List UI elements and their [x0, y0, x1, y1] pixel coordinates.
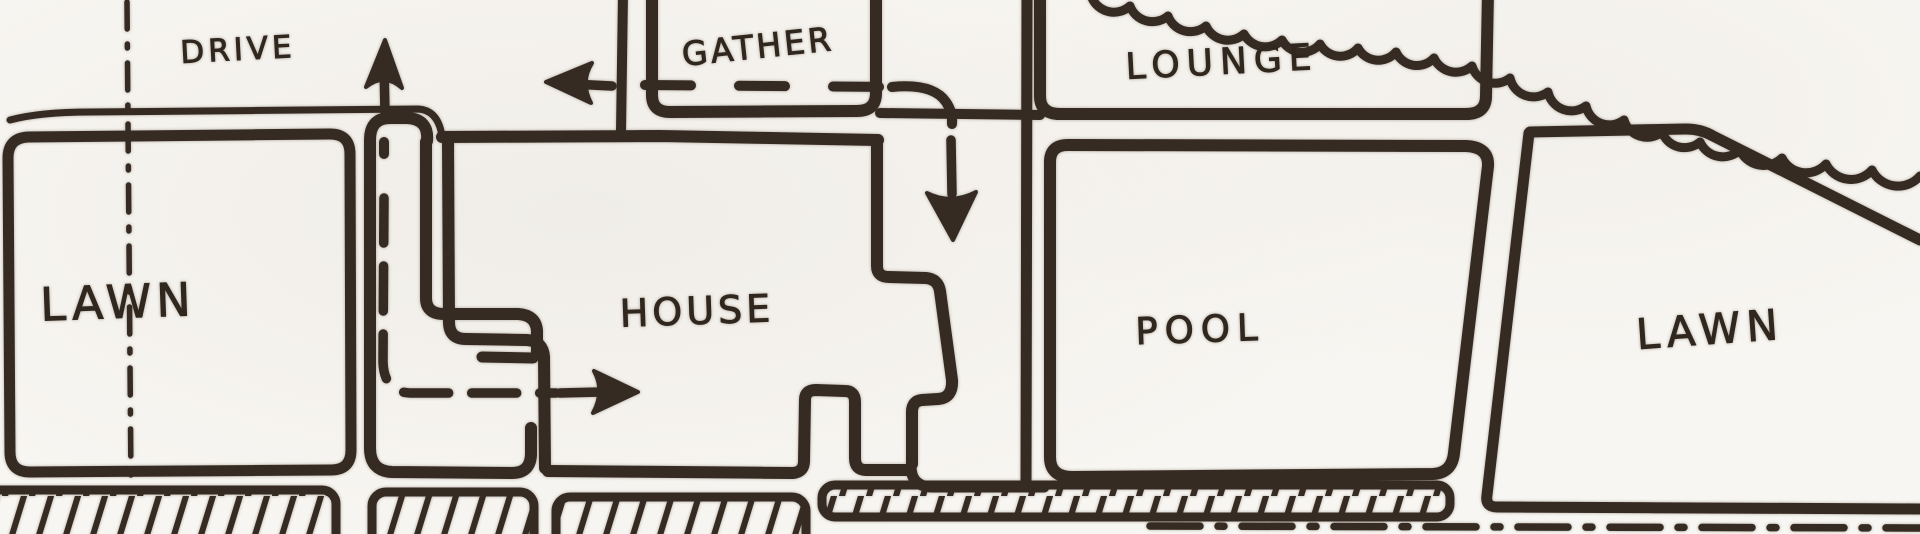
gather-circulation-path	[546, 63, 976, 240]
pool-passage-east-wall	[1026, 0, 1027, 484]
property-line-south	[1150, 526, 1920, 528]
label-house: HOUSE	[619, 286, 775, 335]
lawn-east-top-edge	[1530, 129, 1920, 240]
entry-arrow-right-head	[593, 371, 638, 413]
label-drive: DRIVE	[179, 29, 296, 71]
planting-bed-1	[0, 490, 336, 534]
pool-arrow-down-shaft	[951, 140, 952, 194]
site-plan-sketch: DRIVE GATHER LOUNGE LAWN HOUSE POOL LAWN	[0, 0, 1920, 534]
label-lawn-east: LAWN	[1635, 300, 1786, 359]
label-lawn-west: LAWN	[39, 272, 196, 331]
walk-arrow-up-head	[366, 40, 402, 88]
house-entry-wall-stub	[482, 357, 533, 358]
house-east-wall	[877, 142, 952, 464]
house-west-wall	[448, 142, 545, 468]
property-line-west	[127, 2, 131, 482]
planting-bed-2	[372, 492, 534, 534]
tree-canopy-scallop	[1092, 0, 1920, 186]
label-gather: GATHER	[680, 19, 836, 74]
pool-outline	[1050, 145, 1488, 477]
gather-path-dashed	[645, 85, 888, 87]
gather-arrow-left-head	[546, 63, 592, 103]
house-top-edge	[442, 136, 878, 140]
gather-west-wall-stub	[621, 0, 623, 131]
planting-bed-3	[556, 497, 806, 534]
planting-bed-4	[822, 485, 1450, 517]
label-lounge: LOUNGE	[1125, 37, 1320, 88]
label-pool: POOL	[1135, 306, 1266, 353]
entry-arrow-right-shaft	[560, 392, 601, 393]
pool-arrow-down-head	[927, 192, 976, 240]
terrace-edge-line	[880, 113, 1040, 115]
sketch-paper: DRIVE GATHER LOUNGE LAWN HOUSE POOL LAWN	[0, 0, 1920, 534]
planting-beds	[0, 485, 1450, 534]
walk-path-dashed	[383, 198, 556, 393]
